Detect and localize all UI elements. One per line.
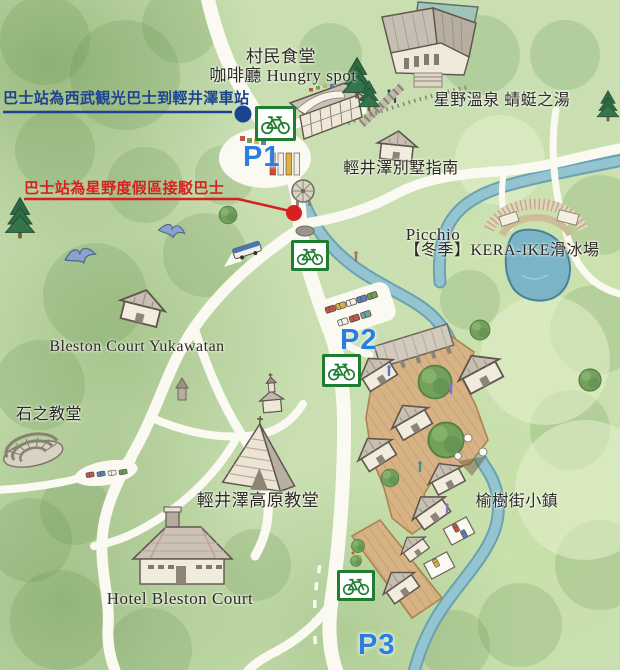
bicycle-rental-station-p2 — [322, 354, 361, 387]
bicycle-icon — [295, 244, 325, 267]
parking-marker-p1: P1 — [243, 141, 280, 174]
onsen-building — [382, 2, 478, 87]
bicycle-icon — [326, 358, 357, 383]
label-stone-church: 石之教堂 — [16, 406, 82, 424]
kera-ike-pond — [506, 230, 570, 301]
bicycle-icon — [341, 574, 371, 597]
label-hotel: Hotel Bleston Court — [107, 589, 253, 609]
small-chapel — [257, 372, 284, 413]
label-yukawatan: Bleston Court Yukawatan — [49, 338, 224, 356]
parking-marker-p3: P3 — [358, 629, 395, 662]
parking-marker-p2: P2 — [340, 324, 377, 357]
bicycle-rental-station-p3 — [337, 570, 375, 601]
shuttle-bus-annotation: 巴士站為星野度假區接駁巴士 — [24, 177, 224, 198]
label-dining-hall: 村民食堂 — [246, 47, 316, 67]
label-villa-guide: 輕井澤別墅指南 — [343, 160, 459, 178]
small-tower — [176, 378, 188, 400]
label-skating-rink: 【冬季】KERA-IKE滑冰場 — [404, 242, 599, 260]
p3-roadside-stalls — [312, 565, 321, 644]
hotel-building — [133, 507, 232, 584]
bicycle-rental-station-p1 — [255, 106, 296, 141]
seibu-bus-annotation: 巴士站為西武観光巴士到輕井澤車站 — [3, 87, 249, 108]
bicycle-icon — [259, 110, 292, 137]
shuttle-bus-stop-marker — [286, 205, 302, 221]
illustrated-resort-map: 村民食堂 咖啡廳 Hungry spot 星野溫泉 蜻蜓之湯 輕井澤別墅指南 P… — [0, 0, 620, 670]
seibu-bus-stop-marker — [235, 106, 252, 123]
label-onsen: 星野溫泉 蜻蜓之湯 — [434, 92, 571, 110]
bicycle-rental-station-mid — [291, 240, 329, 271]
stone-church-building — [0, 429, 65, 472]
label-kogen-church: 輕井澤高原教堂 — [197, 491, 320, 511]
rock — [296, 226, 314, 236]
label-harunire-street: 榆樹街小鎮 — [476, 493, 559, 511]
villa-guide-house — [376, 129, 419, 162]
label-cafe-hungry-spot: 咖啡廳 Hungry spot — [209, 66, 356, 86]
